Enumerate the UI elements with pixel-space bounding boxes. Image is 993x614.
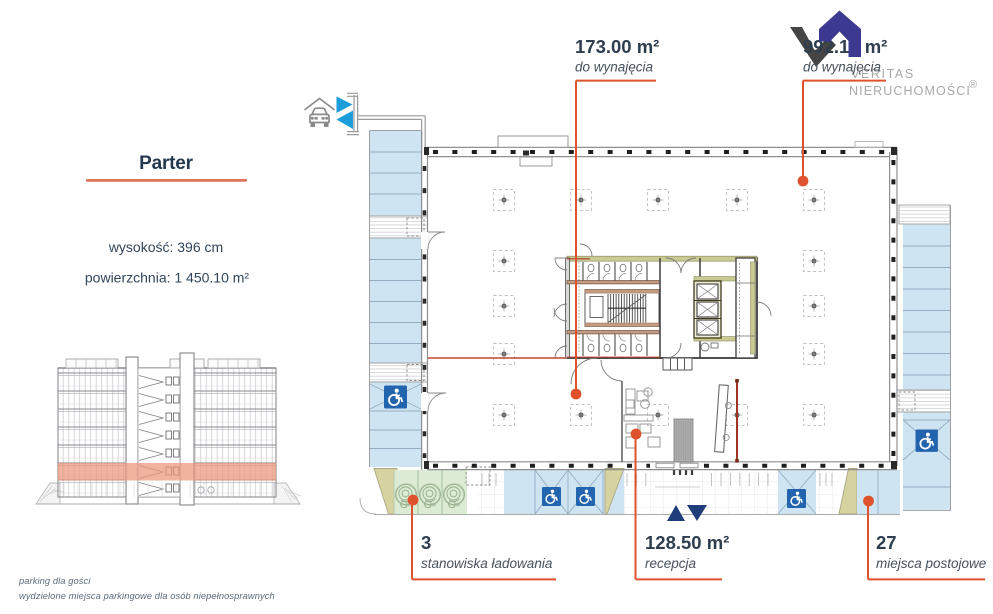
svg-text:parking dla gości: parking dla gości xyxy=(18,576,91,586)
svg-text:NIERUCHOMOŚCI: NIERUCHOMOŚCI xyxy=(849,83,971,98)
svg-text:do wynajęcia: do wynajęcia xyxy=(803,60,882,75)
svg-text:27: 27 xyxy=(876,532,897,553)
svg-text:miejsca postojowe: miejsca postojowe xyxy=(876,556,986,571)
svg-text:recepcja: recepcja xyxy=(645,556,697,571)
svg-text:stanowiska ładowania: stanowiska ładowania xyxy=(421,556,553,571)
svg-text:®: ® xyxy=(969,79,977,91)
svg-text:do wynajęcia: do wynajęcia xyxy=(575,60,654,75)
svg-text:wysokość: 396 cm: wysokość: 396 cm xyxy=(108,239,223,255)
svg-text:powierzchnia: 1 450.10 m²: powierzchnia: 1 450.10 m² xyxy=(85,270,250,286)
svg-text:173.00 m²: 173.00 m² xyxy=(575,36,659,57)
svg-text:wydzielone miejsca parkingowe: wydzielone miejsca parkingowe dla osób n… xyxy=(19,591,275,601)
svg-text:992.10 m²: 992.10 m² xyxy=(803,36,887,57)
svg-text:3: 3 xyxy=(421,532,431,553)
svg-text:128.50 m²: 128.50 m² xyxy=(645,532,729,553)
svg-text:Parter: Parter xyxy=(139,153,194,174)
